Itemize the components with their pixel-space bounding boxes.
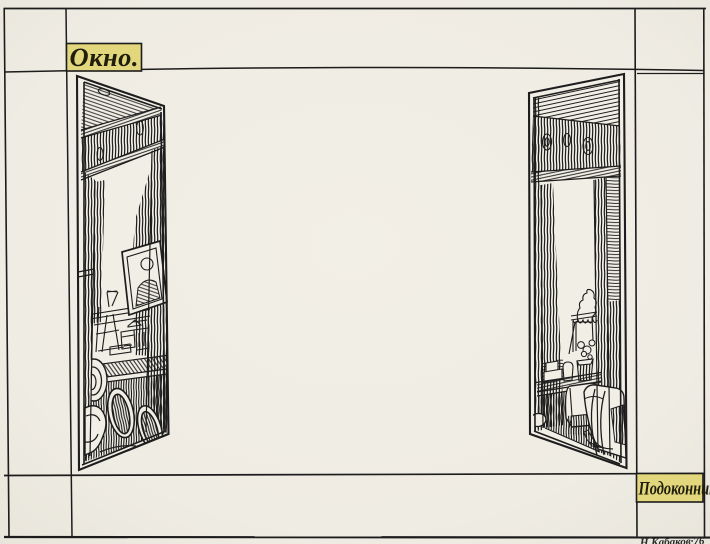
svg-text:Подоконник: Подоконник <box>638 478 710 499</box>
svg-text:Н.Кабаков·76: Н.Кабаков·76 <box>639 535 705 544</box>
svg-text:Окно.: Окно. <box>70 42 139 72</box>
